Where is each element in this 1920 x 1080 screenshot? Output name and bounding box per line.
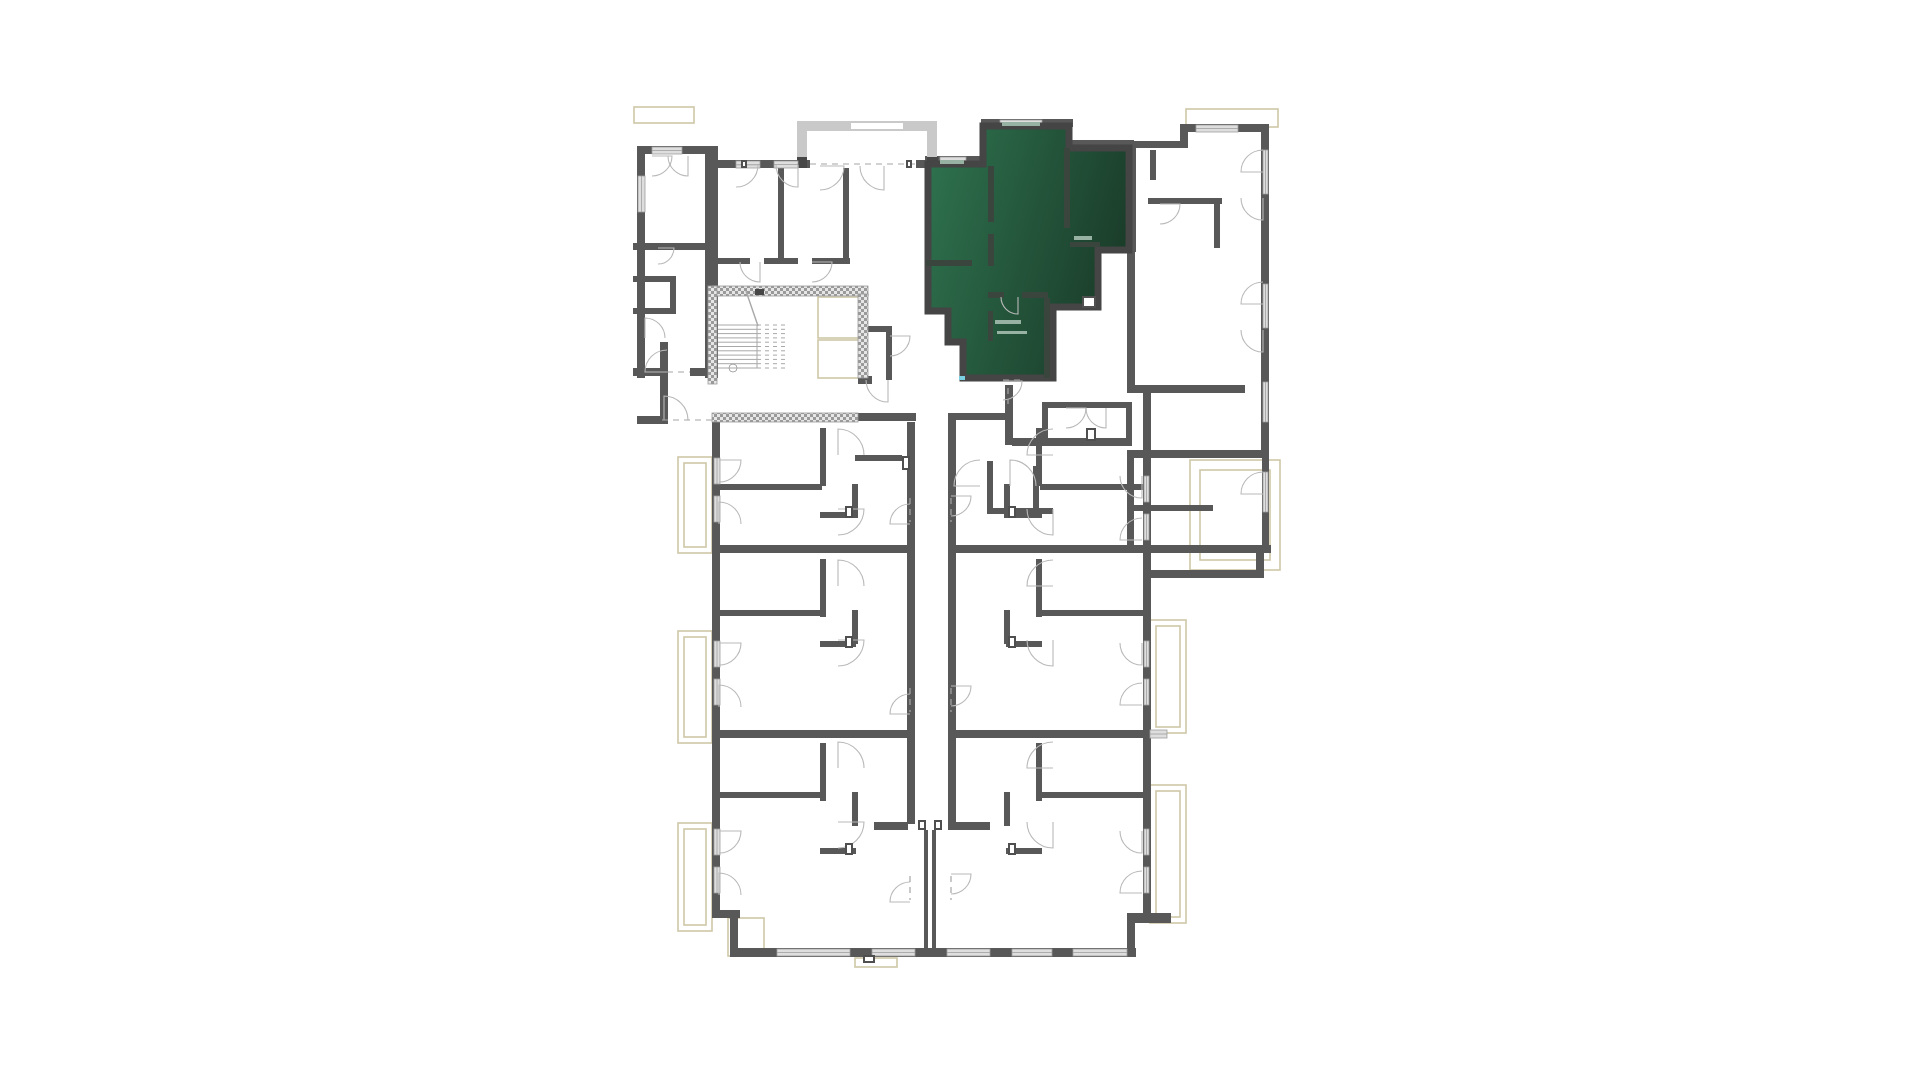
wall-segment — [1135, 385, 1245, 393]
door-swing-arc — [1120, 871, 1142, 893]
door-frame-inner — [865, 957, 873, 961]
wall-segment — [718, 792, 822, 798]
door-swing-arc — [719, 502, 741, 524]
door-swing-arc — [954, 460, 980, 486]
balcony-outline — [684, 829, 706, 925]
wall-segment — [1127, 252, 1135, 393]
unit-window-stub — [1074, 236, 1092, 240]
floor-plan — [0, 0, 1920, 1080]
door-swing-arc — [719, 460, 741, 482]
door-swing-arc — [1241, 282, 1263, 304]
wall-segment — [718, 484, 822, 490]
door-swing-arc — [1010, 460, 1036, 486]
wall-segment — [924, 830, 928, 950]
door-swing-arc — [890, 882, 910, 902]
wall-segment — [987, 508, 1053, 514]
door-swing-arc — [1120, 643, 1142, 665]
door-swing-arc — [740, 262, 760, 282]
unit-inner-wall — [988, 166, 994, 222]
wall-segment — [1150, 570, 1264, 578]
wall-segment — [987, 461, 993, 513]
wall-segment — [874, 822, 908, 830]
wall-segment — [718, 258, 750, 264]
door-swing-arc — [1066, 408, 1086, 428]
door-swing-arc — [1241, 150, 1263, 172]
unit-inner-wall — [1022, 292, 1048, 298]
wall-segment — [1040, 484, 1144, 490]
wall-segment — [1214, 204, 1220, 248]
wall-segment — [1040, 610, 1144, 616]
wall-segment — [1040, 792, 1144, 798]
hatched-wall — [712, 413, 858, 422]
wall-segment — [820, 743, 826, 801]
door-swing-arc — [652, 156, 672, 176]
door-frame-inner — [1010, 638, 1014, 646]
door-swing-arc — [719, 873, 741, 895]
wall-segment — [718, 610, 822, 616]
wall-segment — [712, 545, 915, 553]
wall-segment — [948, 730, 1151, 738]
wall-segment — [1126, 402, 1132, 446]
door-swing-arc — [1086, 408, 1106, 428]
parapet-window — [851, 123, 903, 129]
unit-inner-wall — [988, 311, 993, 341]
door-swing-arc — [1027, 822, 1053, 848]
wall-segment — [843, 168, 849, 264]
wall-segment — [812, 258, 850, 264]
wall-segment — [1134, 141, 1182, 148]
balcony-outline — [684, 463, 706, 547]
door-swing-arc — [668, 156, 688, 176]
door-swing-arc — [951, 874, 971, 894]
balcony-outline — [1156, 791, 1180, 917]
wall-segment — [932, 830, 936, 950]
door-swing-arc — [1120, 683, 1142, 705]
wall-segment — [778, 168, 784, 264]
wall-segment — [1150, 150, 1156, 180]
wall-segment — [712, 910, 740, 918]
unit-entry-marker — [959, 376, 965, 380]
unit-inner-wall — [926, 260, 972, 266]
door-frame-inner — [904, 458, 908, 468]
wall-segment — [1033, 466, 1039, 512]
door-swing-arc — [1160, 204, 1180, 224]
unit-inner-wall — [988, 292, 1004, 298]
hatched-wall — [858, 294, 868, 378]
door-frame-inner — [936, 822, 940, 828]
hatched-wall — [708, 286, 717, 384]
balcony-outline — [818, 340, 863, 378]
floor-plan-canvas — [0, 0, 1920, 1080]
door-frame-inner — [1084, 298, 1094, 306]
door-frame-inner — [847, 845, 851, 853]
wall-segment — [1004, 792, 1010, 826]
wall-segment — [1042, 402, 1048, 446]
wall-segment — [1127, 923, 1135, 951]
balcony-outline — [1156, 626, 1180, 727]
wall-segment — [1127, 458, 1134, 553]
door-swing-arc — [812, 262, 832, 282]
door-swing-arc — [890, 336, 910, 356]
wall-segment — [948, 822, 990, 830]
balcony-outline — [855, 958, 897, 967]
highlighted-unit-group — [926, 122, 1129, 380]
unit-inner-wall — [988, 234, 994, 266]
door-frame-inner — [1010, 845, 1014, 853]
balcony-outline — [634, 107, 694, 123]
balcony-outline — [678, 823, 712, 931]
unit-inner-wall — [1044, 298, 1050, 378]
wall-segment — [820, 428, 826, 486]
balcony-outline — [818, 297, 863, 338]
wall-segment — [907, 422, 915, 824]
wall-segment — [820, 559, 826, 617]
wall-segment — [637, 416, 661, 424]
unit-window-stub — [995, 320, 1021, 324]
wall-segment — [1036, 559, 1042, 617]
wall-segment — [852, 792, 858, 826]
wall-segment — [948, 545, 1151, 553]
door-frame-inner — [847, 508, 851, 516]
door-frame-inner — [743, 162, 745, 166]
core-hatched-walls — [708, 286, 868, 422]
door-swing-arc — [719, 685, 741, 707]
door-swing-arc — [838, 560, 864, 586]
unit-window-stub — [1002, 122, 1040, 126]
door-frame-inner — [920, 822, 924, 828]
door-swing-arc — [1120, 831, 1142, 853]
staircase — [718, 289, 786, 372]
wall-segment — [855, 455, 902, 461]
door-swing-arc — [1241, 472, 1263, 494]
door-swing-arc — [1241, 198, 1263, 220]
door-swing-arc — [1241, 330, 1263, 352]
door-swing-arc — [838, 742, 864, 768]
wall-segment — [633, 308, 675, 314]
wall-segment — [1042, 402, 1132, 408]
door-frame-inner — [1010, 508, 1014, 516]
door-swing-arc — [820, 166, 844, 190]
wall-segment — [633, 243, 709, 250]
wall-segment — [948, 413, 1006, 420]
unit-inner-wall — [1070, 242, 1100, 247]
hatched-wall — [712, 286, 868, 296]
door-swing-arc — [860, 166, 884, 190]
wall-segment — [633, 276, 675, 282]
unit-window-stub — [940, 160, 964, 164]
door-swing-arc — [838, 429, 864, 455]
door-frame-inner — [847, 638, 851, 646]
balcony-outline — [678, 631, 712, 743]
wall-segment — [764, 258, 798, 264]
balcony-outline — [678, 457, 712, 553]
unit-inner-wall — [1064, 148, 1070, 228]
wall-segment — [1005, 385, 1013, 445]
unit-window-stub — [997, 331, 1027, 334]
door-swing-arc — [719, 831, 741, 853]
door-frame-inner — [1088, 430, 1094, 439]
wall-segment — [712, 730, 915, 738]
door-swing-arc — [645, 318, 665, 338]
door-frame-inner — [908, 162, 910, 166]
door-swing-arc — [658, 248, 674, 264]
wall-segment — [858, 413, 916, 421]
balcony-outline — [684, 637, 706, 737]
stair-arrow-head — [755, 289, 764, 295]
door-swing-arc — [719, 643, 741, 665]
wall-segment — [1148, 198, 1222, 204]
wall-segment — [1036, 743, 1042, 801]
